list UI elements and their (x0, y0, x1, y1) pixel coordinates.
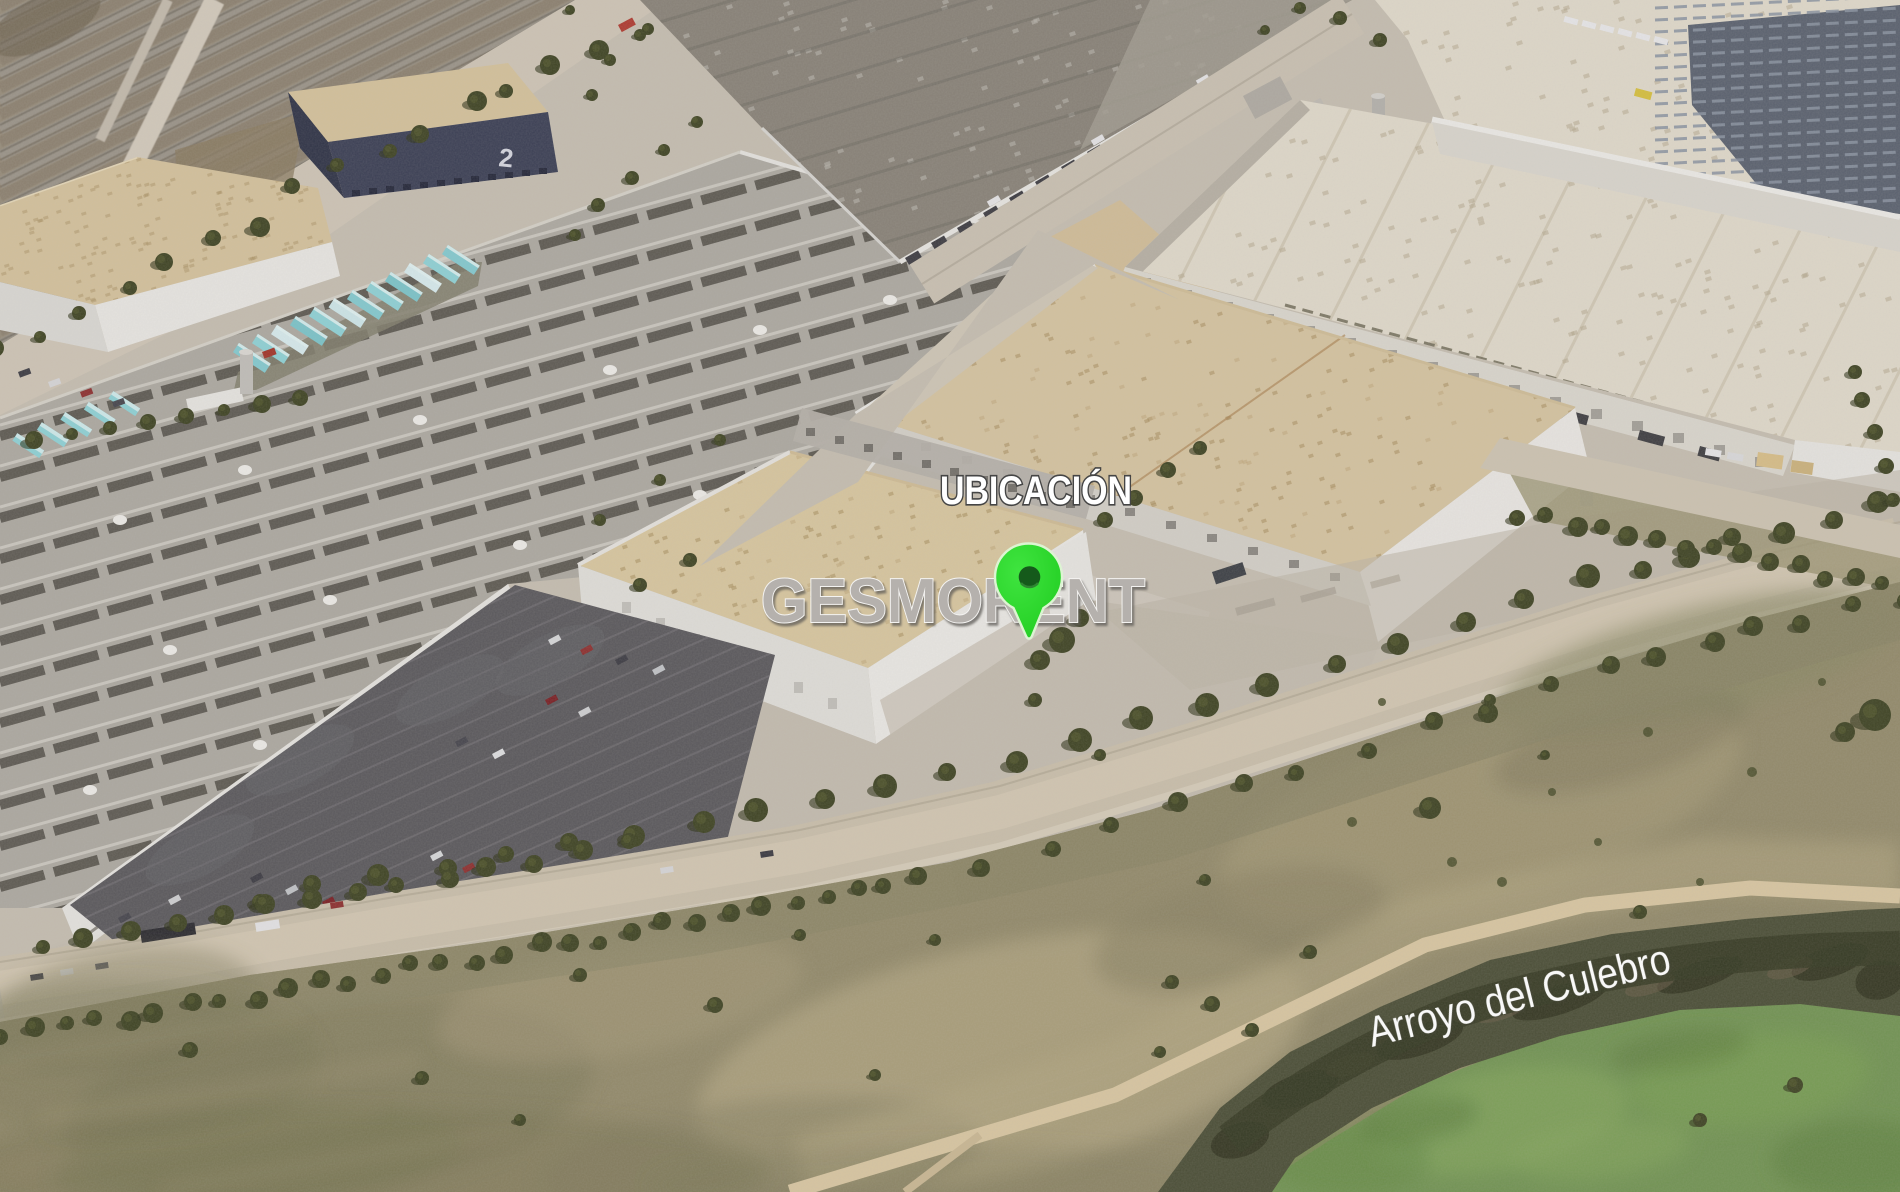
svg-text:GESMORENT: GESMORENT (761, 567, 1145, 636)
svg-text:UBICACIÓN: UBICACIÓN (940, 467, 1132, 513)
